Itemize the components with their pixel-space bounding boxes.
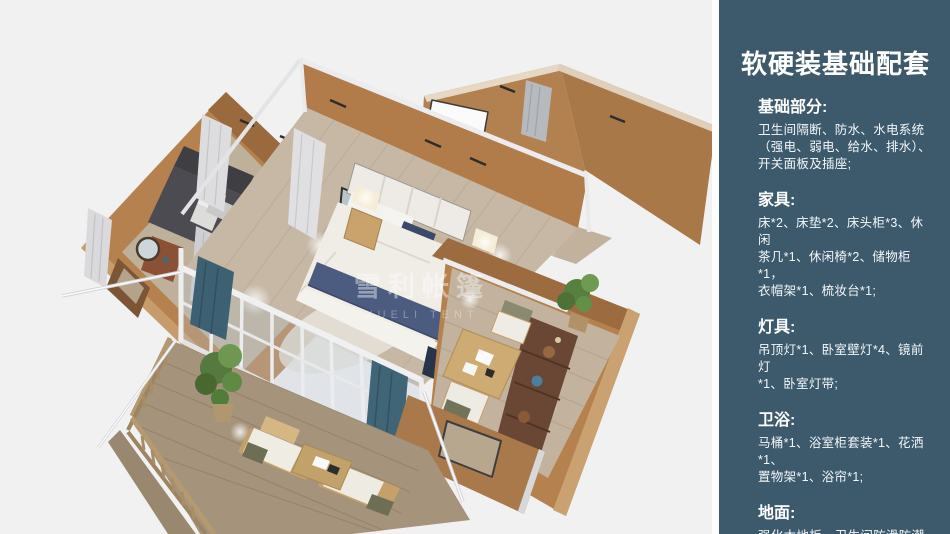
watermark: 雪利帐篷 XUELI TENT xyxy=(354,271,490,321)
section-heading: 灯具: xyxy=(758,318,936,337)
watermark-text: 雪利帐篷 xyxy=(354,271,490,302)
panel-title: 软硬装基础配套 xyxy=(741,50,950,80)
curtain xyxy=(84,208,112,288)
section-body: 床*2、床垫*2、床头柜*3、休闲 茶几*1、休闲椅*2、储物柜*1， 衣帽架*… xyxy=(758,215,936,300)
section-body: 吊顶灯*1、卧室壁灯*4、镜前灯 *1、卧室灯带; xyxy=(758,342,936,393)
round-mirror xyxy=(137,238,159,260)
section-furniture: 家具: 床*2、床垫*2、床头柜*3、休闲 茶几*1、休闲椅*2、储物柜*1， … xyxy=(758,191,936,300)
section-basics: 基础部分: 卫生间隔断、防水、水电系统 （强电、弱电、给水、排水）、 开关面板及… xyxy=(758,98,936,173)
section-list: 基础部分: 卫生间隔断、防水、水电系统 （强电、弱电、给水、排水）、 开关面板及… xyxy=(758,98,936,534)
section-heading: 地面: xyxy=(758,504,936,523)
section-bathroom: 卫浴: 马桶*1、浴室柜套装*1、花洒*1、 置物架*1、浴帘*1; xyxy=(758,411,936,486)
section-heading: 卫浴: xyxy=(758,411,936,430)
watermark-subtext: XUELI TENT xyxy=(365,309,478,321)
panel-divider xyxy=(712,0,719,534)
frame-pole xyxy=(586,172,589,232)
slide: 雪利帐篷 XUELI TENT 软硬装基础配套 基础部分: 卫生间隔断、防水、水… xyxy=(0,0,950,534)
section-body: 马桶*1、浴室柜套装*1、花洒*1、 置物架*1、浴帘*1; xyxy=(758,435,936,486)
section-body: 强化木地板、卫生间防滑防潮石 塑板; xyxy=(758,528,936,534)
section-heading: 基础部分: xyxy=(758,98,936,117)
section-flooring: 地面: 强化木地板、卫生间防滑防潮石 塑板; xyxy=(758,504,936,534)
floorplan-render: 雪利帐篷 XUELI TENT xyxy=(0,0,719,534)
section-body: 卫生间隔断、防水、水电系统 （强电、弱电、给水、排水）、 开关面板及插座; xyxy=(758,122,936,173)
info-panel: 软硬装基础配套 基础部分: 卫生间隔断、防水、水电系统 （强电、弱电、给水、排水… xyxy=(719,0,950,534)
section-lighting: 灯具: 吊顶灯*1、卧室壁灯*4、镜前灯 *1、卧室灯带; xyxy=(758,318,936,393)
section-heading: 家具: xyxy=(758,191,936,210)
